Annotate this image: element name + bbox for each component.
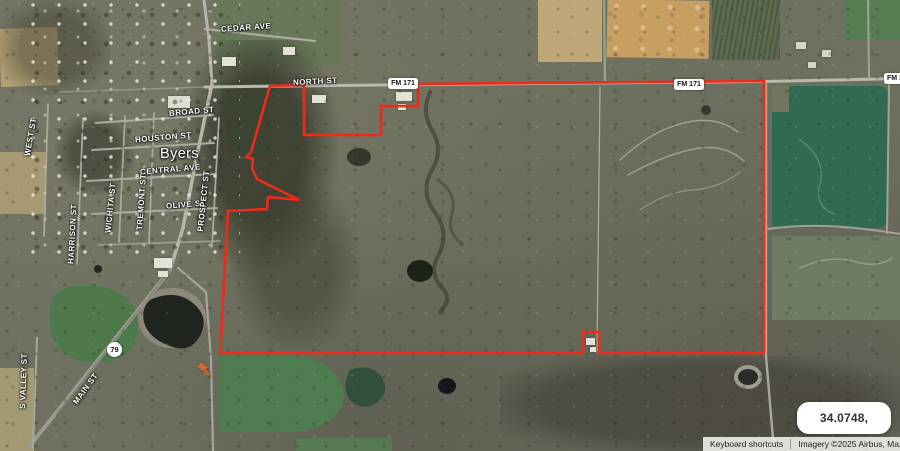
coordinates-badge: 34.0748, -98.1624 — [797, 402, 891, 434]
keyboard-shortcuts-button[interactable]: Keyboard shortcuts — [703, 439, 790, 449]
route-shield-fm171-east: FM 171 — [674, 79, 704, 90]
satellite-map[interactable]: CEDAR AVE NORTH ST BROAD ST HOUSTON ST C… — [0, 0, 900, 451]
route-shield-fm171-west: FM 171 — [388, 78, 418, 89]
property-boundary[interactable] — [220, 81, 764, 353]
route-shield-fm171-edge: FM 171 — [884, 73, 900, 84]
attribution-bar: Keyboard shortcuts Imagery ©2025 Airbus,… — [703, 437, 900, 451]
imagery-credit: Imagery ©2025 Airbus, Maxar Technol — [791, 439, 900, 449]
route-shield-79: 79 — [107, 342, 122, 357]
town-label-byers: Byers — [160, 147, 199, 162]
